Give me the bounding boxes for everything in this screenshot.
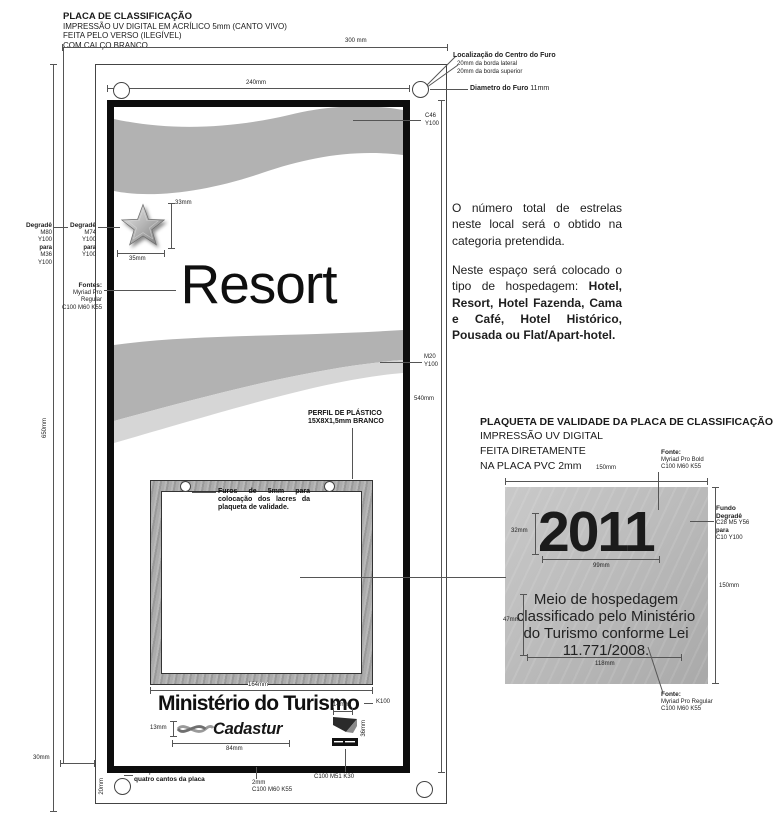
- category-text: Resort: [107, 252, 410, 316]
- dim-label-star-width: 35mm: [129, 256, 146, 264]
- dim-line-art-width: [107, 88, 410, 89]
- dim-line-mark-width: [333, 711, 353, 712]
- leader-swatch-mid: [380, 362, 422, 363]
- dim-label-body-width: 118mm: [595, 661, 615, 669]
- hole-location-line1: 20mm da borda lateral: [457, 61, 517, 69]
- dim-line-year-height: [535, 513, 536, 555]
- plaqueta-title: PLAQUETA DE VALIDADE DA PLACA DE CLASSIF…: [480, 416, 773, 429]
- dim-line-cadastur-width: [172, 743, 290, 744]
- fundo-t2: Degradê: [716, 513, 749, 521]
- dim-label-frame-width: 164mm: [248, 682, 268, 690]
- hole-location-title: Localização do Centro do Furo: [453, 52, 556, 60]
- dim-label-sheet-width: 300 mm: [345, 38, 367, 46]
- gradient-star-title: Degradê: [70, 222, 96, 230]
- gradient-outer-v5: Y100: [18, 260, 52, 268]
- leader-gradient-b: [98, 227, 120, 228]
- gradient-outer-v1: M80: [18, 230, 52, 238]
- leader-mark-color: [345, 749, 346, 772]
- dim-line-star-height: [171, 203, 172, 249]
- plq-font-bold-note: Fonte: Myriad Pro Bold C100 M60 K55: [661, 449, 704, 472]
- plq-fundo-note: Fundo Degradê C28 M5 Y56 para C10 Y100: [716, 505, 749, 543]
- dim-line-star-width: [117, 253, 165, 254]
- gradient-star-v4: Y100: [70, 252, 96, 260]
- fontes-l2: Regular: [62, 297, 102, 305]
- seal-holes-note: Furos de 5mm para colocação dos lacres d…: [218, 488, 310, 513]
- leader-profile: [352, 428, 353, 479]
- dim-label-hole-x: 30mm: [33, 755, 50, 763]
- plaqueta-header: PLAQUETA DE VALIDADE DA PLACA DE CLASSIF…: [480, 416, 773, 474]
- cadastur-swoosh-icon: [176, 719, 214, 739]
- swatch-mid-line2: Y100: [424, 362, 438, 370]
- validity-year: 2011: [538, 499, 654, 565]
- sheet-title: PLACA DE CLASSIFICAÇÃO: [63, 11, 393, 22]
- dim-line-cadastur-height: [173, 721, 174, 737]
- fontes-note: Fontes: Myriad Pro Regular C100 M60 K55: [62, 282, 102, 312]
- corner-hole-top-left-icon: [113, 82, 130, 99]
- leader-border-color: [256, 767, 257, 779]
- fundo-l2: para: [716, 528, 749, 536]
- plq-font-reg-l1: Myriad Pro Regular: [661, 699, 713, 707]
- dim-line-300mm: [62, 47, 448, 48]
- leader-swatch-top: [353, 120, 421, 121]
- profile-label-line2: 15X8X1,5mm BRANCO: [308, 418, 384, 426]
- fontes-title: Fontes:: [62, 282, 102, 290]
- corner-holes-note: Posição dos furos nos quatro cantos da p…: [134, 768, 206, 783]
- ministry-mark-icon: [331, 716, 359, 748]
- gradient-star-v2: Y100: [70, 237, 96, 245]
- gradient-outer-v3: para: [18, 245, 52, 253]
- gradient-star-v3: para: [70, 245, 96, 253]
- fontes-l3: C100 M60 K55: [62, 305, 102, 313]
- corner-hole-bottom-left-icon: [114, 778, 131, 795]
- dim-line-year-width: [542, 559, 660, 560]
- color-label-mark: C100 M51 K30: [314, 774, 354, 782]
- dim-label-year-width: 99mm: [593, 563, 610, 571]
- spec-sheet: PLACA DE CLASSIFICAÇÃO IMPRESSÃO UV DIGI…: [0, 0, 781, 829]
- dim-line-sheet-height: [53, 64, 54, 812]
- hole-location-line2: 20mm da borda superior: [457, 69, 522, 77]
- plaqueta-sub2: FEITA DIRETAMENTE: [480, 444, 773, 459]
- swatch-top-line1: C46: [425, 113, 436, 121]
- dim-label-sheet-height: 650mm: [42, 418, 50, 438]
- dim-label-body-height: 47mm: [503, 617, 520, 625]
- plq-font-reg-l2: C100 M60 K55: [661, 706, 713, 714]
- stars-note: O número total de estrelas neste local s…: [452, 200, 622, 249]
- dim-label-cadastur-height: 13mm: [150, 725, 167, 733]
- dim-label-star-height: 33mm: [175, 200, 192, 208]
- leader-fundo: [690, 521, 714, 522]
- dim-line-body-height: [523, 594, 524, 656]
- plaqueta-sub3: NA PLACA PVC 2mm: [480, 459, 773, 474]
- gradient-note-outer: Degradê M80 Y100 para M36 Y100: [18, 222, 52, 267]
- leader-fontes: [104, 290, 176, 291]
- hole-diameter-title: Diametro do Furo: [470, 85, 528, 92]
- sheet-header: PLACA DE CLASSIFICAÇÃO IMPRESSÃO UV DIGI…: [63, 11, 393, 50]
- corner-hole-bottom-right-icon: [416, 781, 433, 798]
- leader-plq-font-bold: [658, 472, 659, 510]
- plq-font-reg-note: Fonte: Myriad Pro Regular C100 M60 K55: [661, 691, 713, 714]
- validity-body-text: Meio de hospedagem classificado pelo Min…: [510, 591, 702, 659]
- dim-label-cadastur-width: 84mm: [226, 746, 243, 754]
- plq-font-bold-title: Fonte:: [661, 449, 704, 457]
- plq-font-bold-l1: Myriad Pro Bold: [661, 457, 704, 465]
- leader-hole-diameter: [430, 89, 468, 90]
- gradient-star-v1: M74: [70, 230, 96, 238]
- gradient-outer-title: Degradê: [18, 222, 52, 230]
- leader-gradient-a: [54, 227, 68, 228]
- fontes-l1: Myriad Pro: [62, 290, 102, 298]
- ministry-text: Ministério do Turismo: [107, 692, 410, 716]
- leader-k100: [364, 703, 373, 704]
- gradient-outer-v2: Y100: [18, 237, 52, 245]
- gradient-outer-v4: M36: [18, 252, 52, 260]
- dim-line-hole-x: [60, 763, 95, 764]
- dim-line-art-height: [441, 100, 442, 773]
- plq-font-bold-l2: C100 M60 K55: [661, 464, 704, 472]
- lodging-type-note: Neste espaço será colocado o tipo de hos…: [452, 262, 622, 343]
- profile-frame-window: [161, 491, 362, 674]
- sheet-subtitle-2: FEITA PELO VERSO (ILEGÍVEL): [63, 31, 393, 40]
- color-label-k100: K100: [376, 699, 390, 707]
- seal-hole-right-icon: [324, 481, 335, 492]
- swatch-mid-line1: M20: [424, 354, 436, 362]
- dim-label-hole-y: 20mm: [99, 778, 107, 795]
- fundo-l3: C10 Y100: [716, 535, 749, 543]
- leader-seal-holes: [192, 492, 216, 493]
- profile-label-line1: PERFIL DE PLÁSTICO: [308, 410, 382, 418]
- dim-label-mark-width: 14mm: [333, 702, 350, 710]
- seal-hole-left-icon: [180, 481, 191, 492]
- dim-line-frame-width: [150, 690, 373, 691]
- star-icon: [117, 199, 169, 255]
- dim-label-plq-height: 150mm: [719, 583, 739, 591]
- fundo-t1: Fundo: [716, 505, 749, 513]
- dim-line-plq-width: [505, 481, 708, 482]
- dim-label-year-height: 32mm: [511, 528, 528, 536]
- plaqueta-sub1: IMPRESSÃO UV DIGITAL: [480, 429, 773, 444]
- fundo-l1: C28 M5 Y56: [716, 520, 749, 528]
- hole-diameter-label: Diametro do Furo 11mm: [470, 85, 549, 93]
- hole-diameter-value: 11mm: [530, 85, 549, 92]
- extension-line-left: [63, 47, 64, 763]
- cadastur-logo-text: Cadastur: [213, 720, 282, 739]
- border-color-label: C100 M60 K55: [252, 787, 292, 795]
- plq-font-reg-title: Fonte:: [661, 691, 713, 699]
- gradient-note-star: Degradê M74 Y100 para Y100: [70, 222, 96, 260]
- swatch-top-line2: Y100: [425, 121, 439, 129]
- leader-plaqueta: [300, 577, 506, 578]
- dim-label-mark-height: 36mm: [361, 720, 369, 737]
- sheet-subtitle-3: COM CALÇO BRANCO: [63, 41, 393, 50]
- corner-hole-top-right-icon: [412, 81, 429, 98]
- sheet-subtitle-1: IMPRESSÃO UV DIGITAL EM ACRÍLICO 5mm (CA…: [63, 22, 393, 31]
- dim-label-art-height: 540mm: [414, 396, 434, 404]
- dim-label-art-width: 240mm: [246, 80, 266, 88]
- leader-plq-font-reg: [640, 645, 666, 695]
- leader-corner-note: [124, 775, 133, 776]
- dim-label-plq-width: 150mm: [596, 465, 616, 473]
